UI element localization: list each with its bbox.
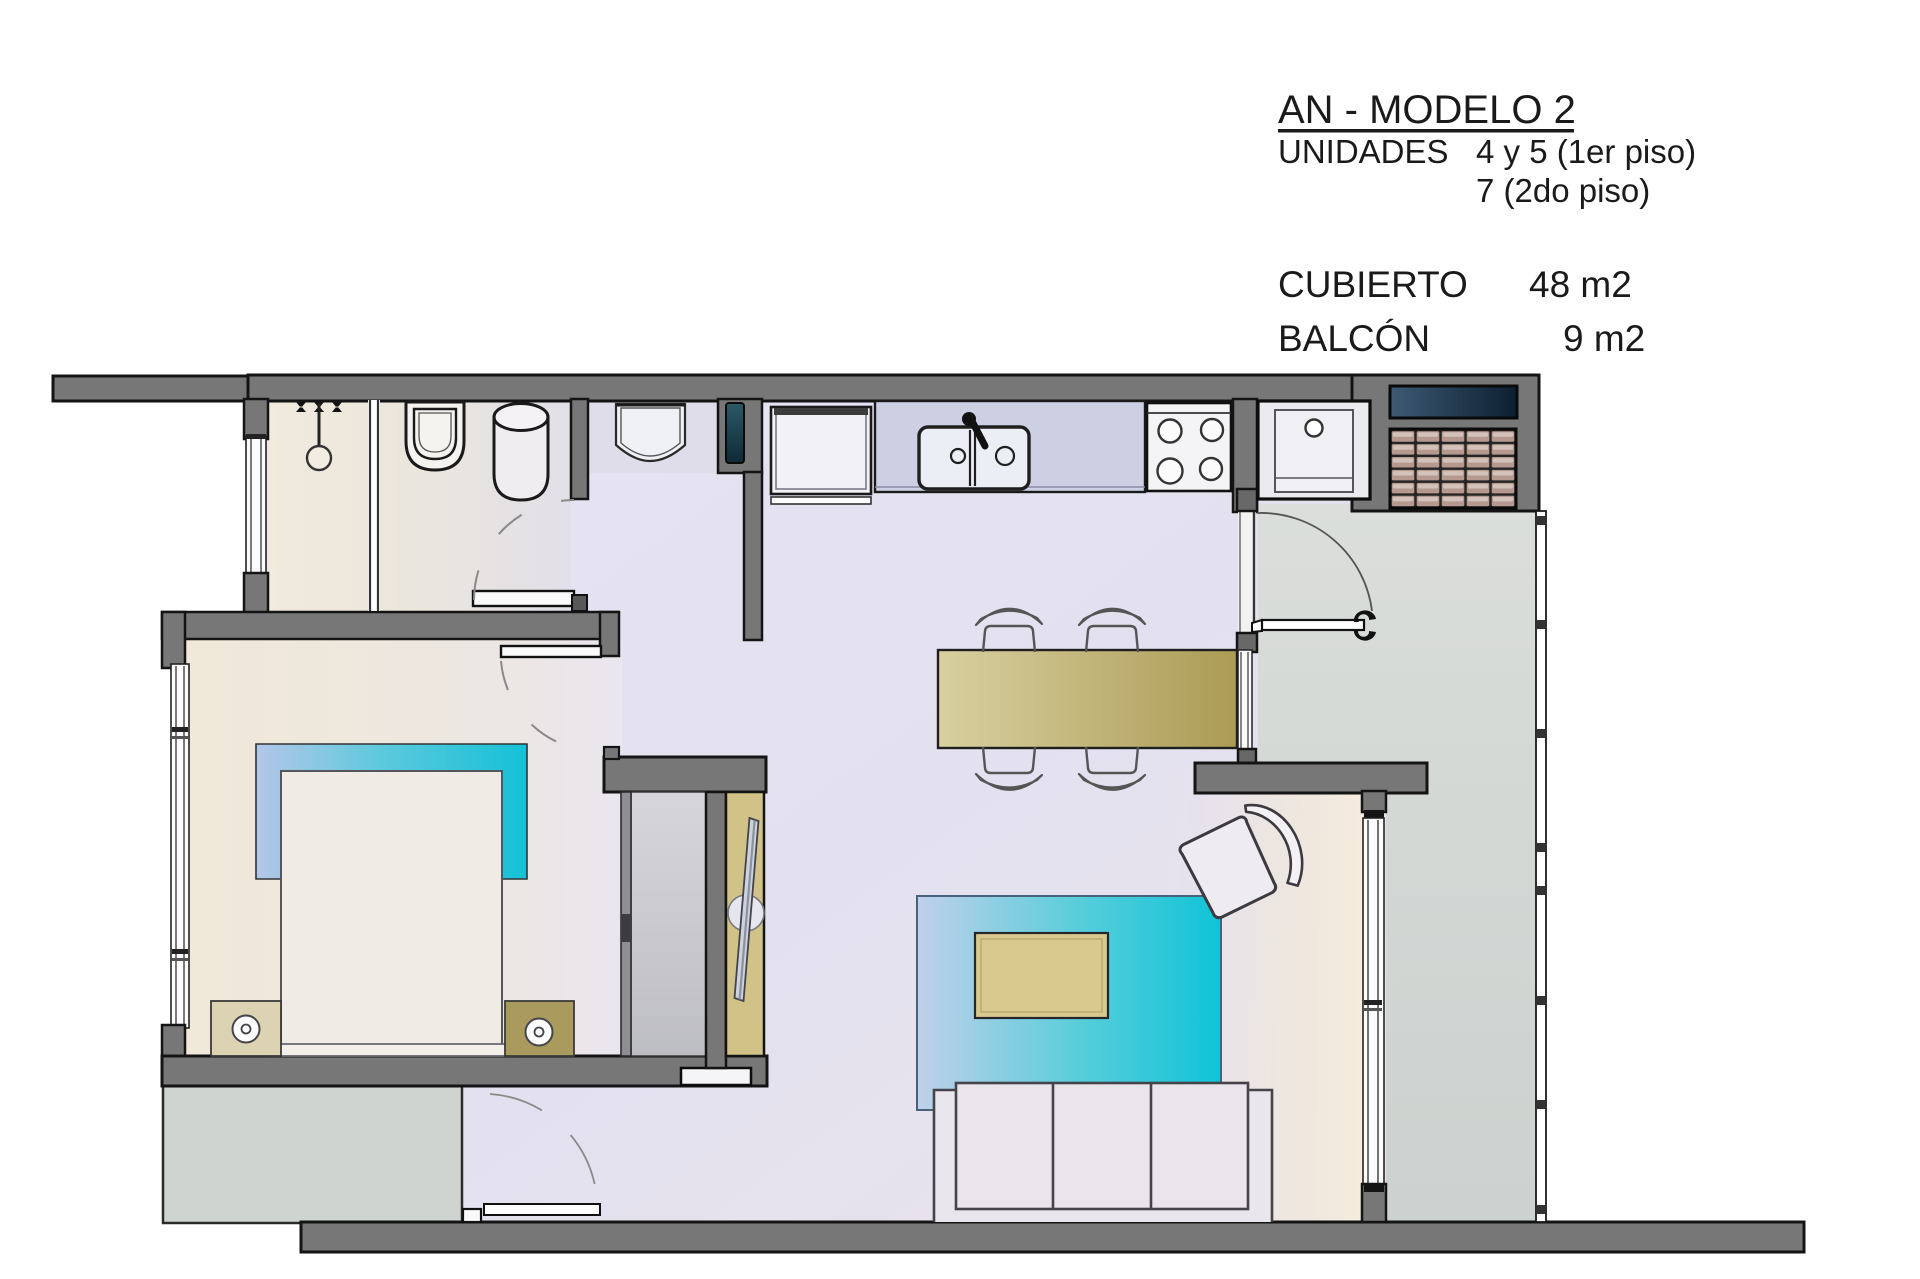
svg-text:AN - MODELO 2: AN - MODELO 2 <box>1278 88 1576 132</box>
svg-text:9 m2: 9 m2 <box>1563 318 1645 359</box>
svg-text:CUBIERTO: CUBIERTO <box>1278 264 1468 305</box>
svg-text:4 y 5 (1er piso): 4 y 5 (1er piso) <box>1476 133 1696 170</box>
svg-text:7 (2do piso): 7 (2do piso) <box>1476 172 1650 209</box>
svg-text:48 m2: 48 m2 <box>1529 264 1632 305</box>
svg-text:UNIDADES: UNIDADES <box>1278 133 1449 170</box>
svg-text:BALCÓN: BALCÓN <box>1278 318 1430 359</box>
